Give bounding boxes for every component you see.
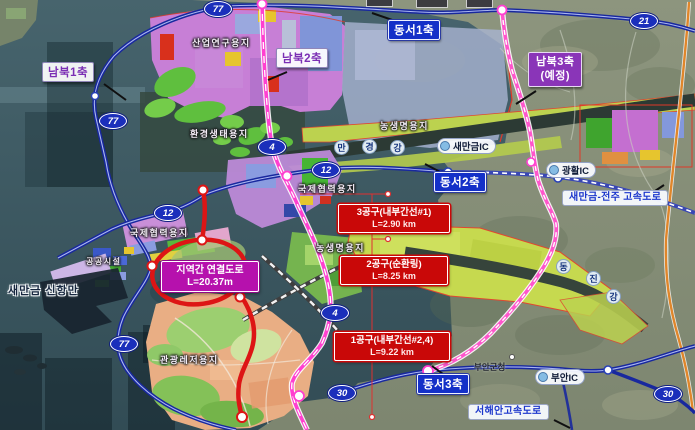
river-label-mangyeong-2: 경: [362, 139, 377, 154]
expressway-label-seohaean: 서해안고속도로: [468, 404, 549, 420]
river-label-dongjin-3: 강: [606, 289, 621, 304]
zone-label-intl-mid: 국제협력용지: [298, 182, 357, 195]
ic-label-saemangeum: 새만금IC: [437, 138, 496, 154]
river-label-dongjin-1: 동: [556, 259, 571, 274]
river-label-mangyeong-3: 강: [390, 140, 405, 155]
section-name: 3공구(내부간선#1): [343, 207, 445, 219]
route-shield-77: 77: [99, 113, 127, 129]
ic-name: 부안IC: [551, 370, 578, 384]
ic-label-gwanghwal: 광활IC: [546, 162, 596, 178]
zone-label-public: 공공시설: [86, 256, 121, 267]
zone-label-eco: 환경생태용지: [190, 127, 249, 140]
route-shield-30: 30: [328, 385, 356, 401]
route-shield-30: 30: [654, 386, 682, 402]
place-label-buan-office: 부안군청: [474, 361, 505, 373]
cropped-title-fragment: [366, 0, 393, 7]
river-label-mangyeong-1: 만: [334, 140, 349, 155]
connector-length: L=20.37m: [167, 277, 253, 289]
section-name: 1공구(내부간선#2,4): [339, 335, 445, 347]
expressway-label-saemangeum-jeonju: 새만금-전주 고속도로: [562, 190, 668, 206]
ic-dot-icon: [538, 372, 548, 382]
axis-label-dongseo3: 동서3축: [417, 374, 469, 394]
ic-label-buan: 부안IC: [535, 369, 585, 385]
zone-label-tourism: 관광레저용지: [160, 353, 219, 366]
cropped-title-fragment: [416, 0, 448, 8]
ic-name: 새만금IC: [453, 139, 489, 153]
river-label-dongjin-2: 진: [586, 271, 601, 286]
route-shield-12: 12: [154, 205, 182, 221]
construction-box-section1: 1공구(내부간선#2,4) L=9.22 km: [334, 332, 450, 361]
section-name: 2공구(순환링): [345, 259, 443, 271]
route-shield-12: 12: [312, 162, 340, 178]
saemangeum-road-plan-map: 남북1축 남북2축 남북3축 (예정) 동서1축 동서2축 동서3축 77 77…: [0, 0, 695, 430]
route-shield-21: 21: [630, 13, 658, 29]
axis-label-nambuk1: 남북1축: [42, 62, 94, 82]
route-shield-77: 77: [204, 1, 232, 17]
connector-name: 지역간 연결도로: [167, 264, 253, 277]
route-shield-77: 77: [110, 336, 138, 352]
place-label-new-port: 새만금 신항만: [8, 282, 79, 298]
section-length: L=8.25 km: [345, 271, 443, 282]
axis-label-nambuk3-title: 남북3축: [536, 55, 574, 69]
ic-dot-icon: [440, 141, 450, 151]
route-shield-4: 4: [321, 305, 349, 321]
route-shield-4: 4: [258, 139, 286, 155]
regional-connector-box: 지역간 연결도로 L=20.37m: [161, 261, 259, 292]
construction-box-section3: 3공구(내부간선#1) L=2.90 km: [338, 204, 450, 233]
axis-label-nambuk3-sub: (예정): [536, 69, 574, 83]
axis-label-dongseo2: 동서2축: [434, 172, 486, 192]
cropped-title-fragment: [466, 0, 493, 8]
section-length: L=2.90 km: [343, 219, 445, 230]
zone-label-agri-north: 농생명용지: [380, 119, 429, 132]
section-length: L=9.22 km: [339, 347, 445, 358]
axis-label-nambuk3: 남북3축 (예정): [528, 52, 582, 87]
ic-dot-icon: [549, 165, 559, 175]
axis-label-nambuk2: 남북2축: [276, 48, 328, 68]
zone-label-industry: 산업연구용지: [192, 36, 251, 49]
construction-box-section2: 2공구(순환링) L=8.25 km: [340, 256, 448, 285]
ic-name: 광활IC: [562, 163, 589, 177]
axis-label-dongseo1: 동서1축: [388, 20, 440, 40]
zone-label-intl-west: 국제협력용지: [130, 226, 189, 239]
zone-label-agri-mid: 농생명용지: [316, 241, 365, 254]
